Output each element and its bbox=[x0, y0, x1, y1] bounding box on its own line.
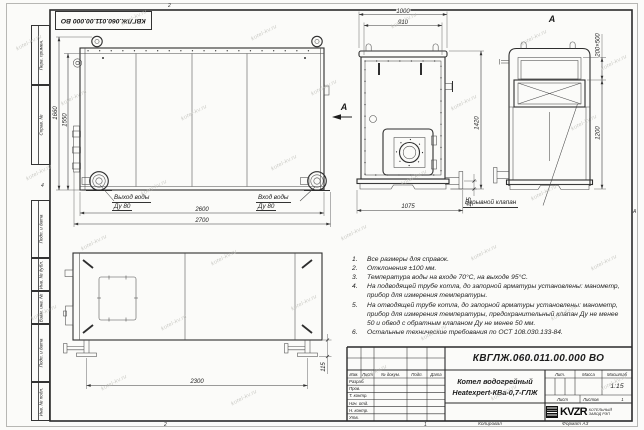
valve-label-text: Взрывной клапан bbox=[463, 199, 518, 208]
dim-front-1075: 1075 bbox=[401, 204, 415, 210]
margin-label: Подп. и дата bbox=[38, 339, 43, 368]
inlet-flange bbox=[301, 172, 331, 191]
dim-front-910: 910 bbox=[398, 20, 409, 26]
row-prov: Пров. bbox=[349, 385, 375, 392]
dim-front-1420: 1420 bbox=[475, 116, 481, 130]
note-item: 5.На отводящей трубе котла, до запорной … bbox=[352, 301, 624, 328]
bottom-hatch bbox=[97, 276, 138, 322]
note-item: 2.Отклонения ±100 мм. bbox=[352, 264, 624, 273]
margin-label: Перв. примен. bbox=[38, 40, 43, 71]
dim-side-1550: 1550 bbox=[63, 113, 69, 127]
fold-mark-bottom-2: 1 bbox=[424, 422, 427, 428]
row-n-kontr: Н. контр. bbox=[349, 407, 375, 414]
row-t-kontr: Т. контр. bbox=[349, 392, 375, 399]
col-data: Дата bbox=[427, 370, 445, 378]
dim-side-1660: 1660 bbox=[53, 106, 59, 120]
margin-label: Подп. и дата bbox=[38, 215, 43, 244]
margin-cell-podp-data-2: Подп. и дата bbox=[31, 324, 50, 382]
burner-door bbox=[383, 129, 437, 175]
view-bottom: 2300 115 bbox=[64, 253, 332, 389]
view-arrow-letter: А bbox=[340, 102, 348, 112]
margin-cell-sprav-no: Справ. № bbox=[31, 85, 50, 165]
dim-valve-size: 200×500 bbox=[596, 33, 602, 58]
outlet-dn: Ду 80 bbox=[112, 203, 132, 212]
kopiroval-label: Копировал bbox=[478, 422, 502, 427]
scale-value: 1:15 bbox=[602, 378, 632, 395]
explosion-valve bbox=[514, 80, 585, 107]
margin-cell-inv-dubl: Инв. № дубл. bbox=[31, 258, 50, 291]
outlet-label: Выход воды bbox=[112, 194, 151, 203]
inlet-label: Вход воды bbox=[256, 194, 291, 203]
listov-label: Листов bbox=[583, 395, 613, 403]
row-razrab: Разраб. bbox=[349, 378, 375, 385]
col-izm: Изм. bbox=[347, 370, 361, 378]
title-doc-number: КВГЛЖ.060.011.00.000 ВО bbox=[446, 348, 631, 369]
margin-cell-podp-data-1: Подп. и дата bbox=[31, 200, 50, 258]
note-item: 6.Остальные технические требования по ОС… bbox=[352, 328, 624, 337]
dim-front-1000: 1000 bbox=[396, 9, 410, 15]
masshtab-label: Масштаб bbox=[602, 370, 632, 378]
product-name-line1: Котел водогрейный bbox=[457, 376, 532, 387]
company-logo: KVZR КОТЕЛЬНЫЙ ЗАВОД РЭП bbox=[546, 404, 631, 420]
logo-subtitle: КОТЕЛЬНЫЙ ЗАВОД РЭП bbox=[589, 408, 612, 417]
drawing-sheet: 1660 1550 2600 2700 bbox=[0, 0, 644, 430]
logo-icon bbox=[546, 406, 558, 418]
lifting-lugs bbox=[73, 36, 322, 67]
margin-label: Инв. № подл. bbox=[38, 387, 43, 416]
outlet-leader-label: Выход воды Ду 80 bbox=[112, 194, 151, 211]
view-front: А 1000 910 1420 1075 115 bbox=[332, 9, 484, 214]
list-label: Лист bbox=[545, 395, 580, 403]
dim-side-2600: 2600 bbox=[194, 207, 209, 213]
lit-label: Лит. bbox=[545, 370, 575, 378]
note-item: 3.Температура воды на входе 70°С, на вых… bbox=[352, 273, 624, 282]
product-name-line2: Heatexpert-КВа-0,7-ГЛЖ bbox=[452, 387, 537, 398]
logo-word: KVZR bbox=[560, 406, 587, 418]
inlet-dn: Ду 80 bbox=[256, 203, 276, 212]
outlet-flange bbox=[82, 172, 112, 191]
technical-notes: 1.Все размеры для справок. 2.Отклонения … bbox=[352, 255, 624, 337]
margin-cell-inv-podl: Инв. № подл. bbox=[31, 382, 50, 421]
view-a-title: А bbox=[548, 14, 556, 24]
product-name: Котел водогрейный Heatexpert-КВа-0,7-ГЛЖ bbox=[446, 372, 544, 401]
note-item: 4.На подводящей трубе котла, до запорной… bbox=[352, 282, 624, 300]
feet bbox=[64, 340, 318, 357]
inlet-leader-label: Вход воды Ду 80 bbox=[256, 194, 291, 211]
margin-cell-vzam-inv: Взам. инв. № bbox=[31, 291, 50, 324]
dim-side-2700: 2700 bbox=[194, 218, 209, 224]
margin-label: Инв. № дубл. bbox=[38, 260, 43, 288]
fold-mark-bottom: 2 bbox=[164, 422, 167, 428]
top-stamp-text: КВГЛЖ.060.011.00.000 ВО bbox=[61, 17, 146, 24]
zone-mark-left: 4 bbox=[41, 183, 44, 189]
format-label: Формат А3 bbox=[562, 422, 588, 427]
col-doc: № докум. bbox=[374, 370, 407, 378]
note-item: 1.Все размеры для справок. bbox=[352, 255, 624, 264]
level-gauge bbox=[73, 126, 81, 172]
col-list: Лист bbox=[361, 370, 374, 378]
zone-mark-right: А bbox=[633, 209, 636, 215]
dim-bottom-2300: 2300 bbox=[189, 379, 204, 385]
explosion-valve-label: Взрывной клапан bbox=[463, 199, 518, 208]
dim-bottom-115: 115 bbox=[321, 362, 327, 372]
dim-viewa-1200: 1200 bbox=[596, 126, 602, 140]
logo-subtitle-line2: ЗАВОД РЭП bbox=[589, 412, 612, 416]
top-stamp: КВГЛЖ.060.011.00.000 ВО bbox=[55, 11, 152, 30]
view-a: А 200×500 1200 bbox=[494, 14, 607, 206]
margin-label: Справ. № bbox=[38, 115, 43, 136]
margin-cell-perv-primen: Перв. примен. bbox=[31, 25, 50, 85]
margin-label: Взам. инв. № bbox=[38, 293, 43, 321]
col-podp: Подп. bbox=[407, 370, 427, 378]
listov-value: 1 bbox=[613, 395, 632, 403]
massa-label: Масса bbox=[575, 370, 602, 378]
fold-mark-top: 2 bbox=[168, 3, 171, 9]
row-nach-otd: Нач. отд. bbox=[349, 400, 375, 407]
row-utv: Утв. bbox=[349, 414, 375, 421]
